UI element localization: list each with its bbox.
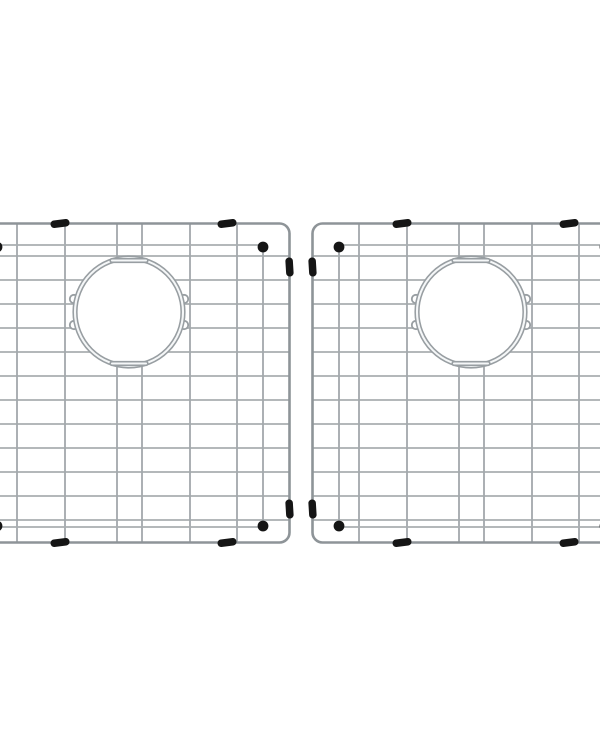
rubber-bumper-rail: [50, 219, 70, 229]
rubber-foot-ball: [0, 242, 2, 253]
sink-grid-left: [0, 222, 291, 544]
rubber-foot-ball: [334, 521, 345, 532]
rubber-foot-ball: [334, 242, 345, 253]
rubber-foot-ball: [0, 521, 2, 532]
rubber-bumper-side: [285, 499, 294, 518]
product-photo: [0, 0, 600, 750]
rubber-bumper-rail: [392, 538, 412, 548]
rubber-bumper-side: [308, 257, 317, 276]
rubber-foot-ball: [258, 242, 269, 253]
rubber-bumper-rail: [50, 538, 70, 548]
rubber-bumper-side: [308, 499, 317, 518]
rubber-bumper-rail: [217, 538, 237, 548]
rubber-bumper-rail: [392, 219, 412, 229]
rubber-bumper-side: [285, 257, 294, 276]
rubber-bumper-rail: [559, 219, 579, 229]
rubber-foot-ball: [258, 521, 269, 532]
drain-opening: [412, 258, 530, 366]
sink-grid-right: [311, 222, 600, 544]
rubber-bumper-rail: [217, 219, 237, 229]
rubber-bumper-rail: [559, 538, 579, 548]
drain-opening: [70, 258, 188, 366]
